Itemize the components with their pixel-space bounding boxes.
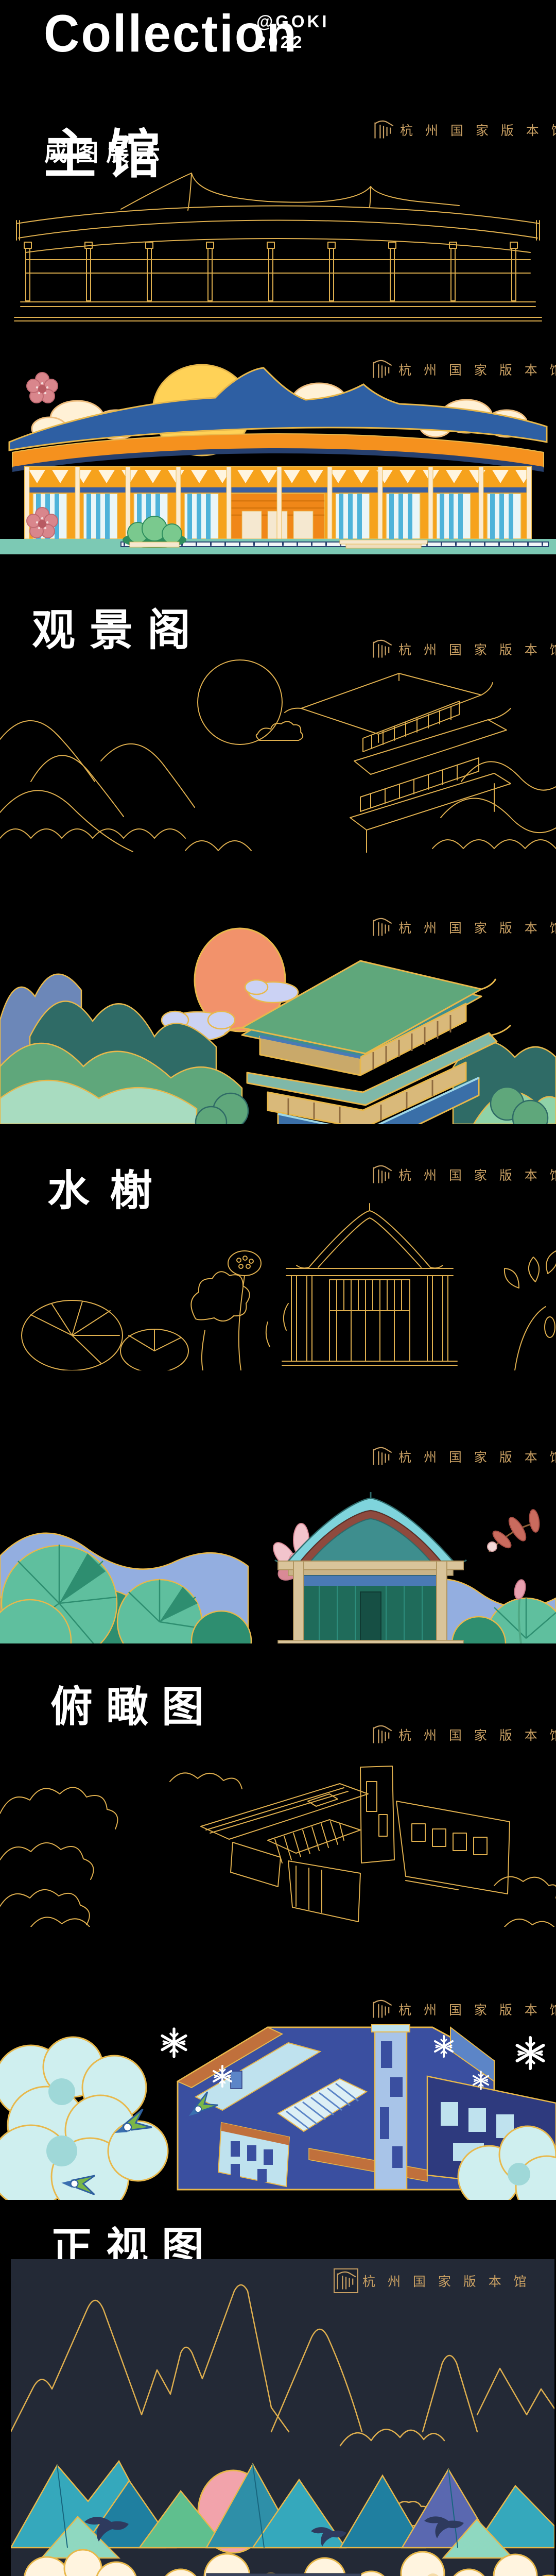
poster-canvas: Collection @GOKI 2022 成图展示 主馆 杭 州 国 家 版 … xyxy=(0,0,556,2576)
brand-logo-text: 杭 州 国 家 版 本 馆 xyxy=(400,121,556,139)
archives-logo-icon xyxy=(335,2269,357,2292)
viewing-pavilion-lineart xyxy=(0,647,556,853)
front-steps xyxy=(340,540,427,548)
brand-logo: 杭 州 国 家 版 本 馆 xyxy=(371,1723,556,1746)
archives-logo-icon xyxy=(371,1163,393,1186)
main-hall-illustration xyxy=(0,361,556,554)
brand-logo: 杭 州 国 家 版 本 馆 xyxy=(371,1445,556,1468)
aerial-view-lineart xyxy=(0,1752,556,1927)
credit-text: @GOKI 2022 xyxy=(256,11,329,53)
pavilion-front xyxy=(275,1492,466,1643)
brand-logo: 杭 州 国 家 版 本 馆 xyxy=(335,2269,531,2292)
pavilion-tower-outline xyxy=(285,673,511,853)
aerial-view-illustration xyxy=(0,2020,556,2200)
archives-logo-icon xyxy=(371,1445,393,1468)
water-pavilion-lineart xyxy=(0,1200,556,1370)
brand-logo: 杭 州 国 家 版 本 馆 xyxy=(372,118,556,141)
aerial-building-outline xyxy=(201,1766,510,1922)
section-title-aerial-view: 俯瞰图 xyxy=(50,1672,217,1734)
front-pavilion xyxy=(190,2573,378,2576)
plum-blossom xyxy=(27,372,58,403)
brand-logo: 杭 州 国 家 版 本 馆 xyxy=(371,1163,556,1186)
archives-logo-icon xyxy=(371,1998,393,2021)
main-hall-lineart xyxy=(10,171,546,326)
brand-logo: 杭 州 国 家 版 本 馆 xyxy=(371,1998,556,2021)
archives-logo-icon xyxy=(372,118,395,141)
viewing-pavilion-illustration xyxy=(0,850,556,1124)
water-pavilion-illustration xyxy=(0,1484,556,1643)
front-view-panel xyxy=(11,2259,554,2576)
archives-logo-icon xyxy=(371,1723,393,1746)
snowflake-icon xyxy=(162,2029,186,2057)
